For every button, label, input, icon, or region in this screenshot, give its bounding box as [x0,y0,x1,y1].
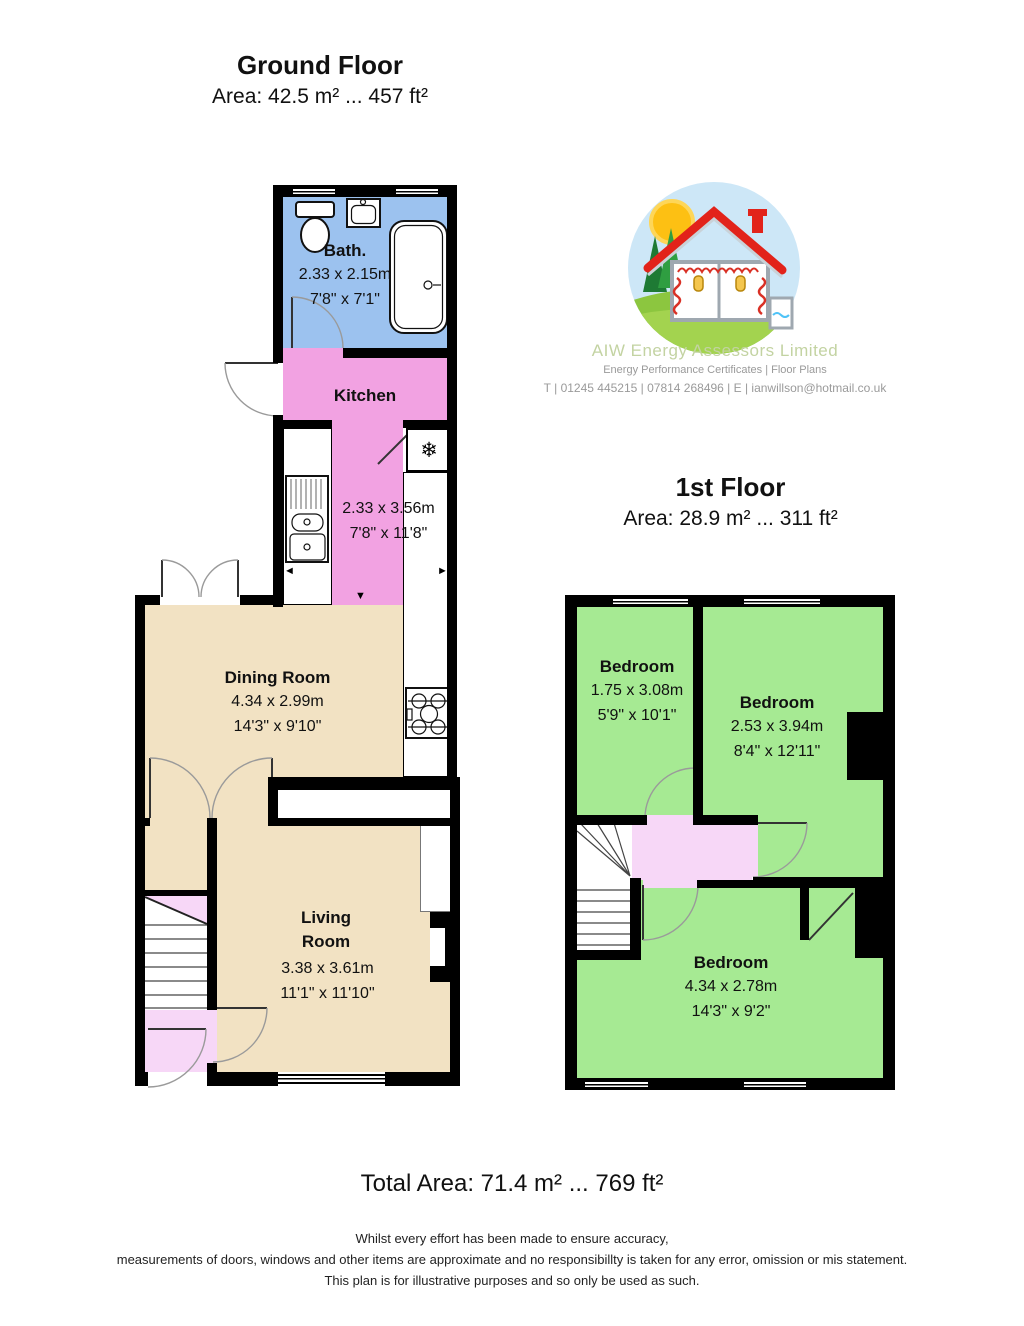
room-dims-imperial: 11'1" x 11'10" [250,982,405,1007]
wall [883,595,895,1090]
wall [697,815,758,825]
bedroom3-chimney-breast [855,888,883,958]
total-area: Total Area: 71.4 m² ... 769 ft² [112,1170,912,1198]
disclaimer-line-2: measurements of doors, windows and other… [12,1249,1012,1270]
measure-arrow-up-icon: ▲ [355,347,366,358]
dining-room-label: Dining Room 4.34 x 2.99m 14'3" x 9'10" [195,666,360,739]
wall [283,420,332,428]
wall [207,818,217,1010]
room-dims-metric: 2.33 x 3.56m [306,497,471,522]
wall [385,1072,460,1086]
room-dims-imperial: 7'8" x 11'8" [306,522,471,547]
first-floor-title: 1st Floor [528,472,933,503]
room-name: Dining Room [195,666,360,690]
wall [145,890,207,896]
bedroom1-label: Bedroom 1.75 x 3.08m 5'9" x 10'1" [557,655,717,728]
wall [268,777,460,790]
living-room-label: Living Room [282,906,370,954]
room-dims-metric: 1.75 x 3.08m [557,679,717,704]
bulb-icon [694,276,703,291]
snowflake-icon: ❄ [420,438,438,463]
wall [135,1072,148,1086]
window [293,187,335,196]
ground-floor-title: Ground Floor [115,50,525,81]
window [585,1080,648,1089]
wall [630,878,641,958]
floorplan-page: Ground Floor Area: 42.5 m² ... 457 ft² 1… [0,0,1024,1326]
stair-winders [577,823,630,876]
dining-french-door-right-arc [212,758,272,818]
water-tank [770,298,792,328]
bedroom2-label: Bedroom 2.53 x 3.94m 8'4" x 12'11" [697,691,857,764]
bedroom1-door-arc [645,768,695,818]
company-logo-icon [620,182,810,356]
stair-treads [577,890,630,945]
living-room-dims: 3.38 x 3.61m 11'1" x 11'10" [250,957,405,1007]
room-dims-metric: 4.34 x 2.78m [651,975,811,1000]
ground-floor-stairs-lines [145,890,207,1008]
wall [753,877,883,888]
wall [577,815,647,825]
room-dims-metric: 2.33 x 2.15m [265,263,425,288]
first-floor-doors [643,768,853,940]
wall [577,950,641,960]
first-floor-area: Area: 28.9 m² ... 311 ft² [528,503,933,535]
measure-arrow-down-icon: ▼ [355,591,366,602]
bulb-icon [736,276,745,291]
logo-company-name: AIW Energy Assessors Limited [545,341,885,361]
wall [273,818,460,826]
window [396,187,438,196]
room-name: Kitchen [285,384,445,408]
living-door-arc [213,1008,267,1062]
room-name: Bath. [265,239,425,263]
chimney-cap [748,209,767,216]
room-dims-metric: 4.34 x 2.99m [195,690,360,715]
bedroom3-label: Bedroom 4.34 x 2.78m 14'3" x 9'2" [651,951,811,1024]
room-dims-metric: 2.53 x 3.94m [697,715,857,740]
first-floor-heading: 1st Floor Area: 28.9 m² ... 311 ft² [528,472,933,535]
bedroom2-door-arc [753,823,807,877]
wall [240,595,283,605]
window [744,1080,806,1089]
garden-door-left-arc [162,560,199,597]
kitchen-side-door-arc [225,363,278,416]
room-dims-imperial: 5'9" x 10'1" [557,704,717,729]
wall [135,818,150,826]
fridge-freezer-icon: ❄ [406,428,452,472]
wall [697,880,753,888]
toilet-cistern-icon [296,202,334,217]
kitchen-dims: 2.33 x 3.56m 7'8" x 11'8" [306,497,471,547]
window [278,1074,385,1084]
measure-arrow-left-icon: ◄ [284,566,295,577]
closet-door-leaf [809,893,853,940]
dining-french-door-left-arc [150,758,210,818]
ground-floor-heading: Ground Floor Area: 42.5 m² ... 457 ft² [115,50,525,113]
window [744,597,820,606]
wall [403,420,447,428]
measure-arrow-right-icon: ► [437,566,448,577]
logo-contact: T | 01245 445215 | 07814 268496 | E | ia… [525,381,905,395]
room-dims-imperial: 14'3" x 9'2" [651,1000,811,1025]
wall [273,415,283,607]
room-dims-imperial: 14'3" x 9'10" [195,715,360,740]
garden-door-right-arc [201,560,238,597]
room-name: Living Room [282,906,370,954]
room-name: Bedroom [697,691,857,715]
logo-services: Energy Performance Certificates | Floor … [545,364,885,376]
front-door-arc [148,1029,206,1087]
bath-label: Bath. 2.33 x 2.15m 7'8" x 7'1" [265,239,425,312]
wall [207,1072,278,1086]
disclaimer-line-3: This plan is for illustrative purposes a… [12,1270,1012,1291]
wall [135,595,145,1086]
room-dims-metric: 3.38 x 3.61m [250,957,405,982]
window [613,597,688,606]
bedroom3-door-arc [643,885,698,940]
wall [447,185,457,790]
room-name: Bedroom [651,951,811,975]
first-floor-stairs-lines [577,823,630,945]
room-name: Bedroom [557,655,717,679]
room-dims-imperial: 8'4" x 12'11" [697,740,857,765]
kitchen-label: Kitchen [285,384,445,408]
plan-linework [0,0,1024,1326]
disclaimer-line-1: Whilst every effort has been made to ens… [12,1228,1012,1249]
closet-wall [800,888,809,940]
chimney-alcove [430,928,445,966]
stair-treads [145,925,207,1008]
room-dims-imperial: 7'8" x 7'1" [265,288,425,313]
ground-floor-area: Area: 42.5 m² ... 457 ft² [115,81,525,113]
